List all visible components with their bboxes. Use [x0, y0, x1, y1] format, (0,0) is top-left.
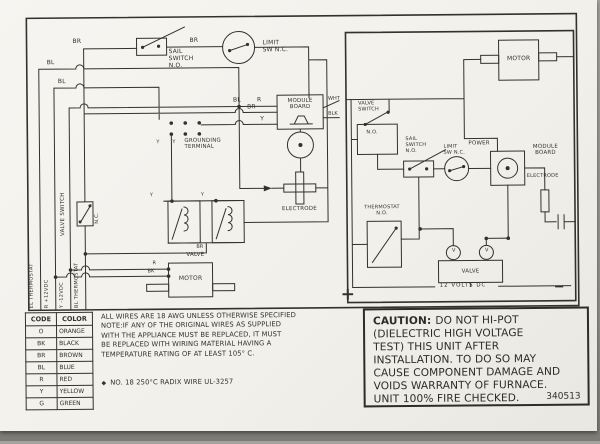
- table-row: RRED: [26, 373, 93, 386]
- electrode-label: ELECTRODE: [282, 206, 317, 213]
- limit-switch-label: LIMIT SW N.C.: [263, 40, 289, 54]
- sail-switch-label: SAIL SWITCH N.O.: [405, 137, 426, 154]
- table-row: OORANGE: [26, 325, 93, 338]
- wire-label-bl: BL: [233, 98, 241, 105]
- diamond-bullet-icon: ◆: [101, 380, 106, 387]
- color-cell: GREEN: [57, 397, 93, 409]
- wire-color-table: CODE COLOR OORANGE BKBLACK BRBROWN BLBLU…: [25, 312, 94, 411]
- color-header: COLOR: [56, 312, 92, 325]
- valve-label: VALVE: [439, 268, 503, 275]
- bus-label-y-12vdc: Y -12VDC: [59, 238, 65, 308]
- module-board-label: MODULE BOARD: [277, 98, 323, 111]
- wire-label-bk: BK: [148, 269, 155, 275]
- wire-label-y: Y: [172, 140, 175, 146]
- right-diagram-border: [345, 31, 575, 303]
- wire-label-r: R: [257, 97, 261, 104]
- thermostat-label: THERMOSTAT N.O.: [360, 205, 404, 217]
- valve-switch-nc-label: N.C.: [95, 204, 101, 224]
- color-cell: YELLOW: [57, 385, 93, 397]
- table-row: BKBLACK: [26, 337, 93, 350]
- radix-wire-footnote: ◆NO. 18 250°C RADIX WIRE UL-3257: [101, 378, 233, 387]
- wire-label-br: BR: [247, 104, 256, 111]
- table-row: BLBLUE: [26, 361, 93, 374]
- table-row: GGREEN: [26, 397, 93, 410]
- code-cell: BK: [26, 338, 57, 350]
- bus-label-r-12vdc: R +12VDC: [44, 238, 50, 308]
- electrode-label: ELECTRODE: [527, 174, 559, 180]
- code-cell: Y: [26, 386, 57, 398]
- electrode-symbol-right: [541, 190, 549, 212]
- valve-switch-no-label: N.O.: [366, 130, 378, 136]
- wire-label-bl: BL: [58, 79, 66, 86]
- outer-border: [26, 14, 579, 311]
- module-board-label: MODULE BOARD: [527, 144, 563, 157]
- valve-switch-label: VALVE SWITCH: [60, 180, 67, 236]
- plus-terminal-label: +: [341, 286, 356, 306]
- left-diagram-wires: [39, 46, 329, 311]
- wire-label-br: BR: [72, 39, 81, 46]
- caution-text: DO NOT HI-POT: [435, 314, 518, 327]
- wire-label-y: Y: [260, 116, 264, 123]
- valve-box-right: [438, 245, 502, 283]
- limit-switch-symbol-left: [222, 31, 254, 63]
- wire-label-bl: BL: [47, 60, 55, 67]
- code-cell: O: [26, 326, 57, 338]
- bus-label-bl-thermostat: BL THERMOSTAT: [74, 230, 80, 308]
- lead-label-blk: BLK: [328, 112, 338, 118]
- junction-dots: [52, 41, 511, 279]
- code-cell: BR: [26, 350, 57, 362]
- wire-label-y: Y: [150, 193, 153, 199]
- valve-coils-left: [168, 200, 244, 243]
- wire-label-br: BR: [189, 38, 198, 45]
- valve-label: VALVE: [186, 252, 204, 258]
- notes-line1: ALL WIRES ARE 18 AWG UNLESS OTHERWISE SP…: [101, 311, 296, 321]
- color-cell: BLUE: [57, 361, 93, 373]
- color-cell: RED: [57, 373, 93, 385]
- caution-line: CAUSE COMPONENT DAMAGE AND: [373, 365, 581, 380]
- caution-title: CAUTION:: [373, 315, 431, 328]
- supply-voltage-label: 12 VOLTS DC: [440, 282, 487, 289]
- color-cell: BROWN: [57, 349, 93, 361]
- code-cell: BL: [26, 362, 57, 374]
- table-row: BRBROWN: [26, 349, 93, 362]
- bus-label-el-thermostat: EL THERMOSTAT: [29, 230, 35, 308]
- valve-coil-v-label: V: [450, 249, 457, 255]
- notes-body: NOTE:IF ANY OF THE ORIGINAL WIRES AS SUP…: [101, 321, 281, 359]
- code-header: CODE: [25, 313, 56, 326]
- limit-switch-symbol-right: [445, 157, 469, 181]
- motor-label: MOTOR: [169, 276, 213, 283]
- table-row: YYELLOW: [26, 385, 93, 398]
- diagram-sheet: BR SAIL SWITCH N.O. BR LIMIT SW N.C. BL …: [0, 0, 600, 444]
- valve-coil-v-label: V: [483, 248, 490, 254]
- part-number: 340513: [546, 392, 580, 402]
- wire-label-y: Y: [201, 193, 204, 199]
- sail-switch-label: SAIL SWITCH N.O.: [169, 49, 194, 70]
- limit-switch-label: LIMIT SW N.C.: [443, 145, 465, 157]
- power-label: POWER: [468, 140, 489, 146]
- color-cell: ORANGE: [56, 325, 92, 337]
- wire-label-y: Y: [156, 140, 159, 146]
- wiring-notes: ALL WIRES ARE 18 AWG UNLESS OTHERWISE SP…: [101, 311, 351, 360]
- motor-label: MOTOR: [499, 56, 539, 63]
- color-cell: BLACK: [57, 337, 93, 349]
- minus-terminal-label: −: [554, 281, 565, 296]
- footnote-text: NO. 18 250°C RADIX WIRE UL-3257: [110, 378, 233, 387]
- caution-box: CAUTION:DO NOT HI-POT (DIELECTRIC HIGH V…: [363, 306, 590, 407]
- wire-label-br: BR: [196, 245, 203, 251]
- code-cell: G: [26, 398, 57, 410]
- lead-label-wht: WHT: [328, 97, 340, 103]
- valve-switch-label: VALVE SWITCH: [358, 101, 379, 113]
- electrode-symbol-left: [284, 172, 316, 204]
- code-cell: R: [26, 374, 57, 386]
- grounding-terminal-label: GROUNDING TERMINAL: [184, 138, 221, 151]
- wire-label-r: R: [152, 261, 156, 267]
- table-header-row: CODE COLOR: [25, 312, 92, 326]
